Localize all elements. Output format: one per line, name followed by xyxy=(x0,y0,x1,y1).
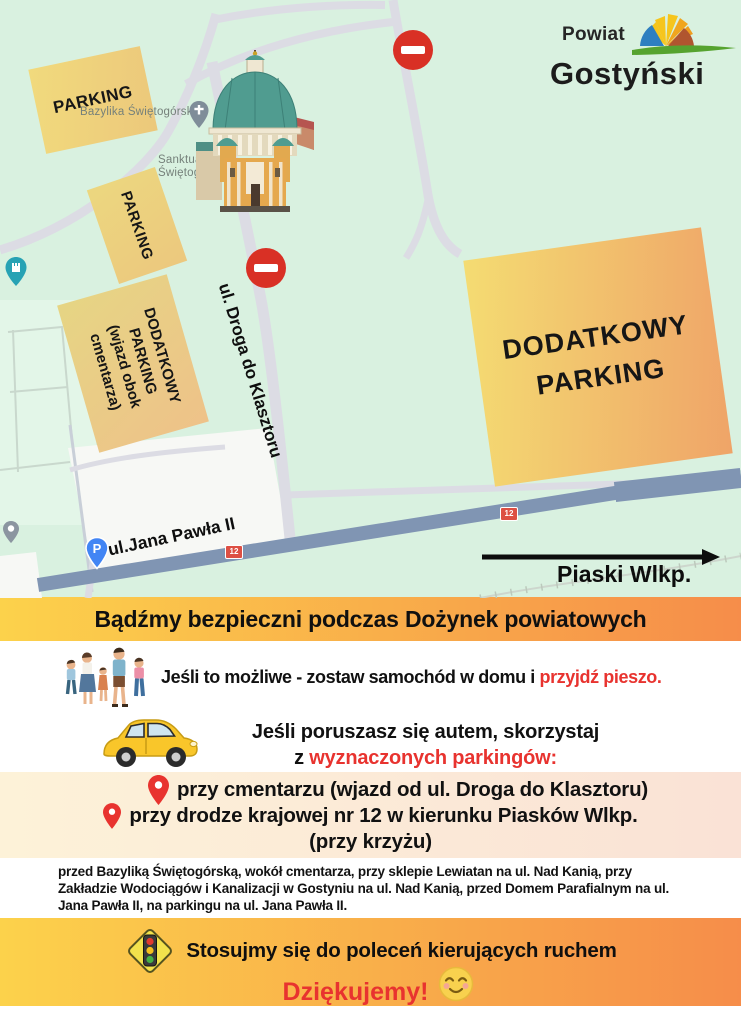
parking-list-section: przy cmentarzu (wjazd od ul. Droga do Kl… xyxy=(0,772,741,858)
basilica-map-label: Bazylika Świętogórska xyxy=(80,106,199,118)
family-walking-icon xyxy=(62,646,154,708)
parking-info-poster: PARKING PARKING DODATKOWY PARKING (wjazd… xyxy=(0,0,741,1024)
car-advice-line2: z wyznaczonych parkingów: xyxy=(110,745,741,771)
parking-zone-label: DODATKOWY PARKING (wjazd obok cmentarza) xyxy=(82,305,184,422)
walk-advice-highlight: przyjdź pieszo. xyxy=(539,667,661,687)
footer-strip xyxy=(0,1006,741,1024)
parking-details-text: przed Bazyliką Świętogórską, wokół cment… xyxy=(0,858,741,918)
walk-advice-text: Jeśli to możliwe - zostaw samochód w dom… xyxy=(161,667,535,687)
basilica-photo xyxy=(194,50,316,212)
logo-text-powiat: Powiat xyxy=(562,24,625,46)
walk-advice-section: Jeśli to możliwe - zostaw samochód w dom… xyxy=(0,641,741,713)
road-12-shield: 12 xyxy=(225,545,243,559)
red-location-pin-icon xyxy=(103,803,121,829)
parking-pin-letter: P xyxy=(93,541,102,556)
car-advice-line1: Jeśli poruszasz się autem, skorzystaj xyxy=(110,719,741,745)
no-entry-icon xyxy=(246,248,286,288)
logo-text-gostynski: Gostyński xyxy=(550,56,740,92)
traffic-light-sign-icon xyxy=(124,925,176,977)
thanks-banner-line1: Stosujmy się do poleceń kierujących ruch… xyxy=(186,939,616,963)
thanks-banner: Stosujmy się do poleceń kierujących ruch… xyxy=(0,918,741,1006)
direction-label: Piaski Wlkp. xyxy=(557,561,691,588)
parking-zone-label: PARKING xyxy=(117,189,156,262)
safety-banner-text: Bądźmy bezpieczni podczas Dożynek powiat… xyxy=(94,606,646,633)
monument-pin-icon xyxy=(2,520,20,544)
white-area-corner xyxy=(0,552,42,598)
parking-zone-additional-large: DODATKOWY PARKING xyxy=(463,227,732,486)
thanks-banner-line2-wrap: Dziękujemy! xyxy=(0,978,741,1007)
parking-zone-label: DODATKOWY PARKING xyxy=(500,304,696,410)
blushing-smiley-icon xyxy=(437,965,475,1003)
parking-list-item-continued: (przy krzyżu) xyxy=(0,829,741,856)
thanks-banner-line2: Dziękujemy! xyxy=(283,978,429,1006)
powiat-gostynski-logo: Powiat Gostyński xyxy=(550,12,740,92)
safety-banner: Bądźmy bezpieczni podczas Dożynek powiat… xyxy=(0,597,741,641)
sunrise-logo-icon xyxy=(628,12,740,60)
map-section: PARKING PARKING DODATKOWY PARKING (wjazd… xyxy=(0,0,741,598)
church-pin-icon xyxy=(188,100,210,129)
red-location-pin-icon xyxy=(148,775,169,805)
parking-pin-icon: P xyxy=(84,536,110,570)
car-advice-section: Jeśli poruszasz się autem, skorzystaj z … xyxy=(0,713,741,772)
road-12-shield: 12 xyxy=(500,507,518,521)
castle-pin-icon xyxy=(4,256,28,287)
car-advice-highlight: wyznaczonych parkingów: xyxy=(309,747,557,769)
parking-list-item: przy cmentarzu (wjazd od ul. Droga do Kl… xyxy=(0,775,741,805)
yellow-car-icon xyxy=(98,710,202,774)
no-entry-icon xyxy=(393,30,433,70)
parking-list-item: przy drodze krajowej nr 12 w kierunku Pi… xyxy=(0,803,741,830)
